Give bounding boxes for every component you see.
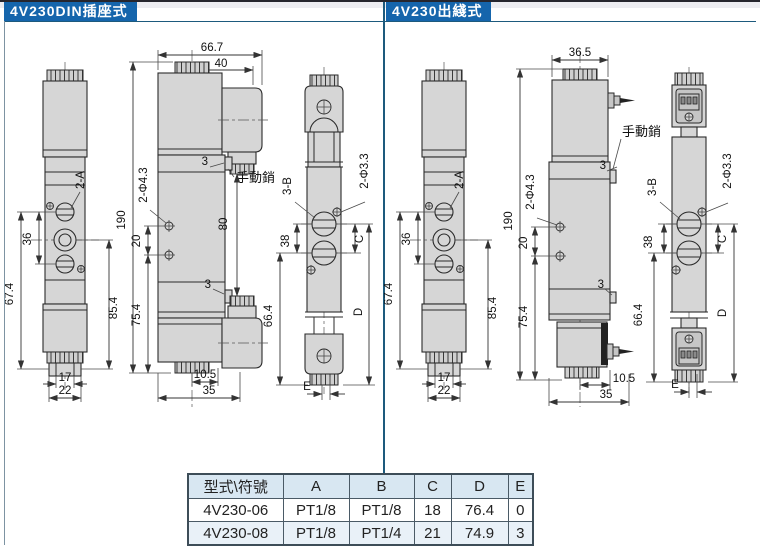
cell-e: 0 <box>508 499 533 522</box>
col-header-e: E <box>508 474 533 499</box>
coil-side-bottom <box>557 322 607 367</box>
datasheet-page: { "header": { "left": "4V230DIN插座式", "ri… <box>0 0 760 545</box>
coil-body <box>43 81 87 157</box>
back-view: 3-B 38 66.4 2-Φ3.3 C D E <box>263 67 375 400</box>
cell-c: 18 <box>414 499 451 522</box>
port-b <box>56 255 74 273</box>
cell-e: 3 <box>508 522 533 546</box>
knurl-cap <box>47 352 83 363</box>
right-drawing-wire-type: 2-A 36 67.4 85.4 17 22 36.5 3 <box>384 22 760 472</box>
dim-3-bottom-label: 3 <box>205 279 211 291</box>
cell-b: PT1/8 <box>349 499 414 522</box>
port-a <box>56 203 74 221</box>
dim-2-phi33-label: 2-Φ3.3 <box>722 153 734 188</box>
dim-3b-label: 3-B <box>282 177 294 195</box>
table-row-4v230-06: 4V230-06 PT1/8 PT1/8 18 76.4 0 <box>188 499 533 522</box>
port <box>677 241 701 265</box>
cell-a: PT1/8 <box>283 522 349 546</box>
dim-3-top-label: 3 <box>202 156 208 168</box>
cell-model: 4V230-08 <box>188 522 283 546</box>
cell-b: PT1/4 <box>349 522 414 546</box>
dim-67-4-label: 67.4 <box>5 282 16 305</box>
dim-22-label: 22 <box>59 385 72 397</box>
cell-d: 76.4 <box>451 499 508 522</box>
coil-side-bottom <box>158 318 222 362</box>
dim-66-7-label: 66.7 <box>201 42 223 54</box>
left-drawing-din-type: 2-A 36 67.4 85.4 17 22 66.7 40 <box>5 22 383 472</box>
dim-10-5-label: 10.5 <box>194 369 216 381</box>
dim-22-label: 22 <box>438 385 451 397</box>
lead-wire <box>620 98 635 103</box>
dim-190-label: 190 <box>116 210 128 229</box>
dim-38-label: 38 <box>643 236 655 249</box>
side-view: 36.5 3 手動銷 2-Φ4.3 20 190 75.4 3 <box>503 47 661 407</box>
dim-85-4-label: 85.4 <box>108 296 120 319</box>
valve-body-side <box>158 155 225 318</box>
port <box>312 212 336 236</box>
valve-body-back <box>307 167 341 312</box>
dim-85-4-label: 85.4 <box>487 296 499 319</box>
din-plug <box>228 306 256 318</box>
manual-pin-label: 手動銷 <box>236 170 275 185</box>
side-view: 66.7 40 3 手動銷 2-Φ4.3 20 190 75.4 <box>116 42 275 407</box>
dim-36-5-label: 36.5 <box>569 47 591 59</box>
col-header-b: B <box>349 474 414 499</box>
col-header-a: A <box>283 474 349 499</box>
dim-67-4-label: 67.4 <box>384 282 395 305</box>
dim-75-4-label: 75.4 <box>131 303 143 326</box>
cable-gland <box>608 93 614 108</box>
dim-66-4-label: 66.4 <box>633 303 645 326</box>
manual-override-tab <box>225 157 232 170</box>
section-title-din: 4V230DIN插座式 <box>4 2 137 21</box>
dim-75-4-label: 75.4 <box>518 305 530 328</box>
table-header-row: 型式\符號 A B C D E <box>188 474 533 499</box>
front-view: 2-A 36 67.4 85.4 17 22 <box>5 62 120 402</box>
dim-17-label: 17 <box>59 372 72 384</box>
dim-e-label: E <box>671 379 679 391</box>
dim-35-label: 35 <box>600 389 613 401</box>
coil-side <box>552 80 608 162</box>
col-header-d: D <box>451 474 508 499</box>
cable-gland <box>607 344 613 359</box>
cell-d: 74.9 <box>451 522 508 546</box>
dim-e-label: E <box>303 381 311 393</box>
cell-c: 21 <box>414 522 451 546</box>
coil-side <box>158 73 222 155</box>
dim-2-phi33-label: 2-Φ3.3 <box>359 153 371 188</box>
port <box>677 212 701 236</box>
dim-2-phi43-label: 2-Φ4.3 <box>138 167 150 202</box>
dim-80-label: 80 <box>218 218 230 231</box>
col-header-c: C <box>414 474 451 499</box>
dim-2a-label: 2-A <box>454 171 466 189</box>
dim-66-4-label: 66.4 <box>263 304 275 327</box>
dim-3-bottom-label: 3 <box>598 279 604 291</box>
dim-17-label: 17 <box>438 372 451 384</box>
section-title-wire: 4V230出綫式 <box>386 2 491 21</box>
dim-38-label: 38 <box>280 235 292 248</box>
coil-body-bottom <box>43 304 87 352</box>
dim-40-label: 40 <box>215 58 228 70</box>
manual-override-tab <box>610 170 616 183</box>
front-view: 2-A 36 67.4 85.4 17 22 <box>384 62 499 402</box>
lead-wire <box>619 349 634 354</box>
dim-36-label: 36 <box>401 233 413 246</box>
coil-body <box>422 81 466 157</box>
port <box>312 241 336 265</box>
dim-190-label: 190 <box>503 211 515 230</box>
dim-2-phi43-label: 2-Φ4.3 <box>525 174 537 209</box>
dim-3-top-label: 3 <box>600 160 606 172</box>
cell-a: PT1/8 <box>283 499 349 522</box>
col-header-model: 型式\符號 <box>188 474 283 499</box>
table-row-4v230-08: 4V230-08 PT1/8 PT1/4 21 74.9 3 <box>188 522 533 546</box>
dim-10-5-label: 10.5 <box>613 373 635 385</box>
dim-2a-label: 2-A <box>75 171 87 189</box>
dim-c-label: C <box>717 235 729 243</box>
back-view: 3-B 38 66.4 2-Φ3.3 C D E <box>633 67 738 398</box>
dim-36-label: 36 <box>22 233 34 246</box>
knurl-cap <box>175 62 209 73</box>
dim-d-label: D <box>353 308 365 316</box>
knurl-cap <box>47 70 83 81</box>
dim-35-label: 35 <box>203 385 216 397</box>
dim-d-label: D <box>717 309 729 317</box>
manual-pin-label: 手動銷 <box>622 124 661 139</box>
spec-table: 型式\符號 A B C D E 4V230-06 PT1/8 PT1/8 18 … <box>187 473 534 546</box>
valve-body-side <box>549 162 610 320</box>
dim-c-label: C <box>354 235 366 243</box>
cell-model: 4V230-06 <box>188 499 283 522</box>
dim-3b-label: 3-B <box>647 178 659 196</box>
